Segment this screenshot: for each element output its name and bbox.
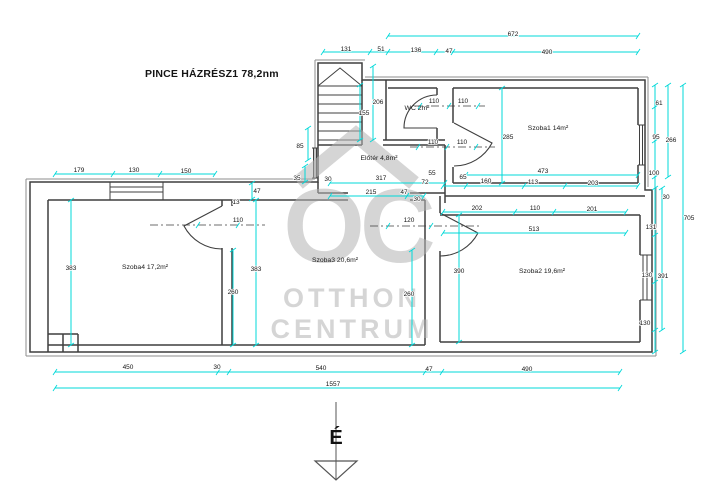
dimension-label: 490 <box>542 49 553 56</box>
dimension-label: 130 <box>642 272 653 279</box>
dimension-label: 30 <box>413 196 421 203</box>
dimension-label: 160 <box>481 178 492 185</box>
dimension-label: 260 <box>228 289 239 296</box>
dimension-label: 30 <box>213 364 221 371</box>
dimension-label: 206 <box>373 99 384 106</box>
dimension-label: 383 <box>66 265 77 272</box>
dimension-label: 450 <box>123 364 134 371</box>
dimension-label: 85 <box>296 143 304 150</box>
dimension-label: 47 <box>400 189 408 196</box>
dimension-label: 705 <box>684 215 695 222</box>
dimension-label: 30 <box>324 176 332 183</box>
dimension-label: 30 <box>662 194 670 201</box>
dimension-label: 120 <box>404 217 415 224</box>
dimension-label: 540 <box>316 365 327 372</box>
door-szoba4 <box>184 206 222 249</box>
dimension-label: 490 <box>522 366 533 373</box>
dimension-label: 383 <box>251 266 262 273</box>
watermark: OC OTTHON CENTRUM <box>271 135 434 344</box>
dimension-label: 215 <box>366 189 377 196</box>
dimension-label: 110 <box>428 139 439 146</box>
dimension-label: 65 <box>459 174 467 181</box>
dimension-label: 100 <box>649 170 660 177</box>
dimension-label: 110 <box>530 205 541 212</box>
dimension-label: 202 <box>472 205 483 212</box>
dimension-label: 110 <box>233 217 244 224</box>
dimension-label: 130 <box>129 167 140 174</box>
dimension-label: 110 <box>458 98 469 105</box>
room-label: Szoba1 14m² <box>528 125 569 132</box>
room-label: Szoba3 20,6m² <box>312 257 359 264</box>
dimension-label: 95 <box>652 134 660 141</box>
dimension-label: 317 <box>376 175 387 182</box>
room-label: Szoba4 17,2m² <box>122 264 169 271</box>
plan-title: PINCE HÁZRÉSZ1 78,2nm <box>145 67 279 80</box>
dimension-label: 260 <box>404 291 415 298</box>
dimension-label: 203 <box>588 180 599 187</box>
dimension-label: 672 <box>508 31 519 38</box>
dimension-label: 473 <box>538 168 549 175</box>
dimension-label: 47 <box>253 188 261 195</box>
dimension-label: 1557 <box>326 381 341 388</box>
dimension-label: 390 <box>454 268 465 275</box>
dimension-label: 179 <box>74 167 85 174</box>
dimension-label: 513 <box>529 226 540 233</box>
dimension-label: 131 <box>341 46 352 53</box>
dimension-label: 72 <box>421 179 429 186</box>
dimension-label: 51 <box>377 46 385 53</box>
watermark-monogram: OC <box>283 168 433 285</box>
room-label: Szoba2 19,6m² <box>519 268 566 275</box>
dimension-label: 131 <box>646 224 657 231</box>
stair-gable <box>318 68 362 86</box>
watermark-line1: OTTHON <box>283 283 421 313</box>
floorplan-canvas: PINCE HÁZRÉSZ1 78,2nm OC OTTHON CENTRUM <box>0 0 707 500</box>
dimension-label: 266 <box>666 137 677 144</box>
dimension-label: 201 <box>587 206 598 213</box>
floorplan-svg: PINCE HÁZRÉSZ1 78,2nm OC OTTHON CENTRUM <box>0 0 707 500</box>
compass-north-label: É <box>329 426 342 449</box>
dimension-label: 150 <box>181 168 192 175</box>
room-label: WC 2m² <box>405 105 431 112</box>
room-label: Előtér 4,8m² <box>360 155 398 162</box>
dimension-label: 47 <box>425 366 433 373</box>
dimension-label: 155 <box>359 110 370 117</box>
watermark-line2: CENTRUM <box>271 314 434 344</box>
dimension-label: 55 <box>428 170 436 177</box>
dimension-label: 47 <box>445 48 453 55</box>
dimension-label: 136 <box>411 47 422 54</box>
dimension-label: 110 <box>429 98 440 105</box>
dimension-label: 35 <box>293 175 301 182</box>
compass: É <box>315 402 357 480</box>
dimension-label: 13 <box>232 199 240 206</box>
dimension-label: 113 <box>528 179 539 186</box>
dimension-label: 391 <box>658 273 669 280</box>
dimension-label: 285 <box>503 134 514 141</box>
dimension-label: 130 <box>640 320 651 327</box>
dimension-label: 110 <box>457 139 468 146</box>
dimension-label: 61 <box>655 100 663 107</box>
